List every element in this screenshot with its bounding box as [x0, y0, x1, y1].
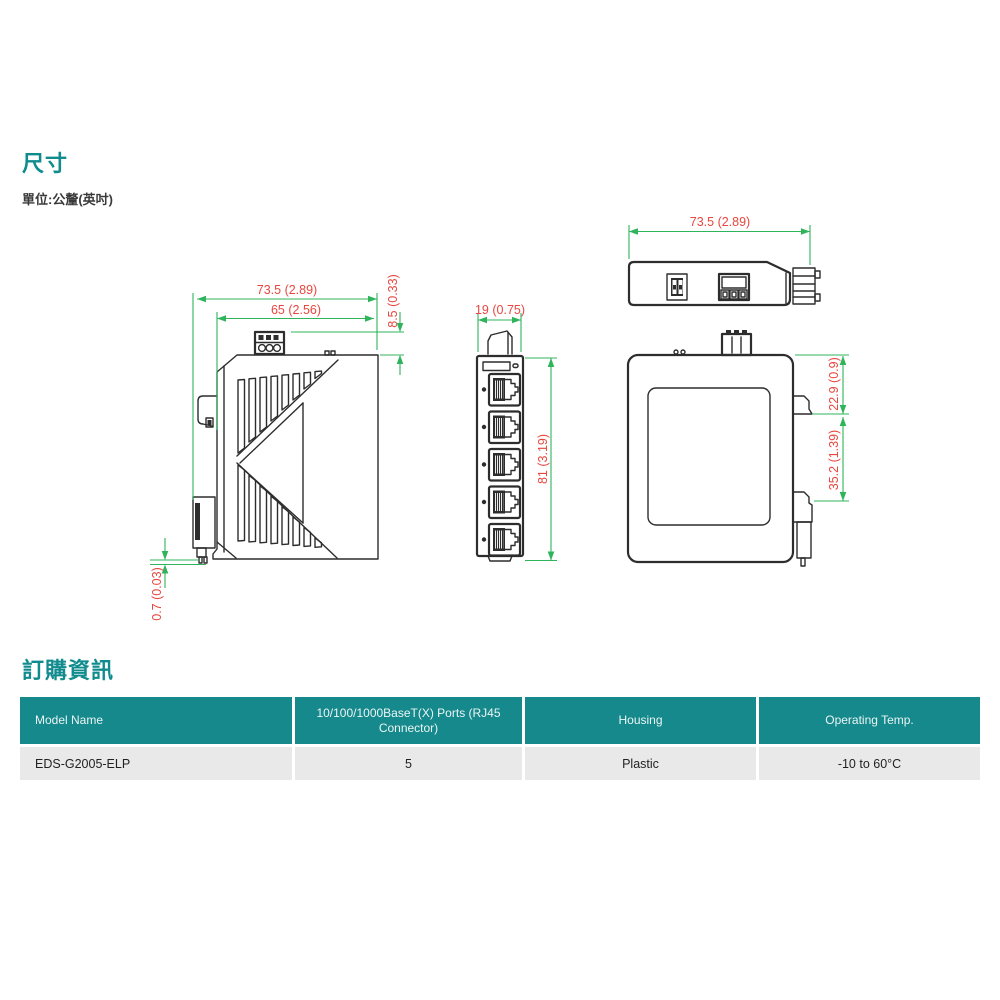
ordering-table: Model Name 10/100/1000BaseT(X) Ports (RJ…: [20, 697, 980, 780]
table-cell-operating-temp: -10 to 60°C: [759, 747, 980, 780]
dim-rear-clip-span: 35.2 (1.39): [827, 430, 841, 490]
datasheet-page: 尺寸 單位:公釐(英吋): [0, 0, 1000, 1000]
dim-side-bottom-gap: 0.7 (0.03): [150, 567, 164, 621]
dim-side-terminal-height: 8.5 (0.33): [386, 274, 400, 328]
dim-front-height: 81 (3.19): [536, 434, 550, 484]
top-view-drawing: 73.5 (2.89): [629, 215, 820, 305]
table-cell-model-name: EDS-G2005-ELP: [20, 747, 292, 780]
dim-front-width: 19 (0.75): [475, 303, 525, 317]
dim-top-width: 73.5 (2.89): [690, 215, 750, 229]
table-header-ports: 10/100/1000BaseT(X) Ports (RJ45 Connecto…: [295, 697, 522, 744]
table-header-housing: Housing: [525, 697, 756, 744]
dim-side-width-outer: 73.5 (2.89): [257, 283, 317, 297]
table-cell-ports: 5: [295, 747, 522, 780]
rear-view-drawing: 22.9 (0.9) 35.2 (1.39): [628, 330, 849, 566]
side-view-drawing: 73.5 (2.89) 65 (2.56) 8.5 (0.33) 0.7 (0.…: [150, 274, 404, 621]
table-header-model-name: Model Name: [20, 697, 292, 744]
table-cell-housing: Plastic: [525, 747, 756, 780]
ordering-section-title: 訂購資訊: [22, 653, 114, 685]
dimension-drawings: 73.5 (2.89) 65 (2.56) 8.5 (0.33) 0.7 (0.…: [0, 0, 1000, 660]
front-view-drawing: 19 (0.75) 81 (3.19): [475, 303, 557, 561]
dim-side-width-inner: 65 (2.56): [271, 303, 321, 317]
dim-rear-clip-offset: 22.9 (0.9): [827, 357, 841, 411]
table-header-operating-temp: Operating Temp.: [759, 697, 980, 744]
